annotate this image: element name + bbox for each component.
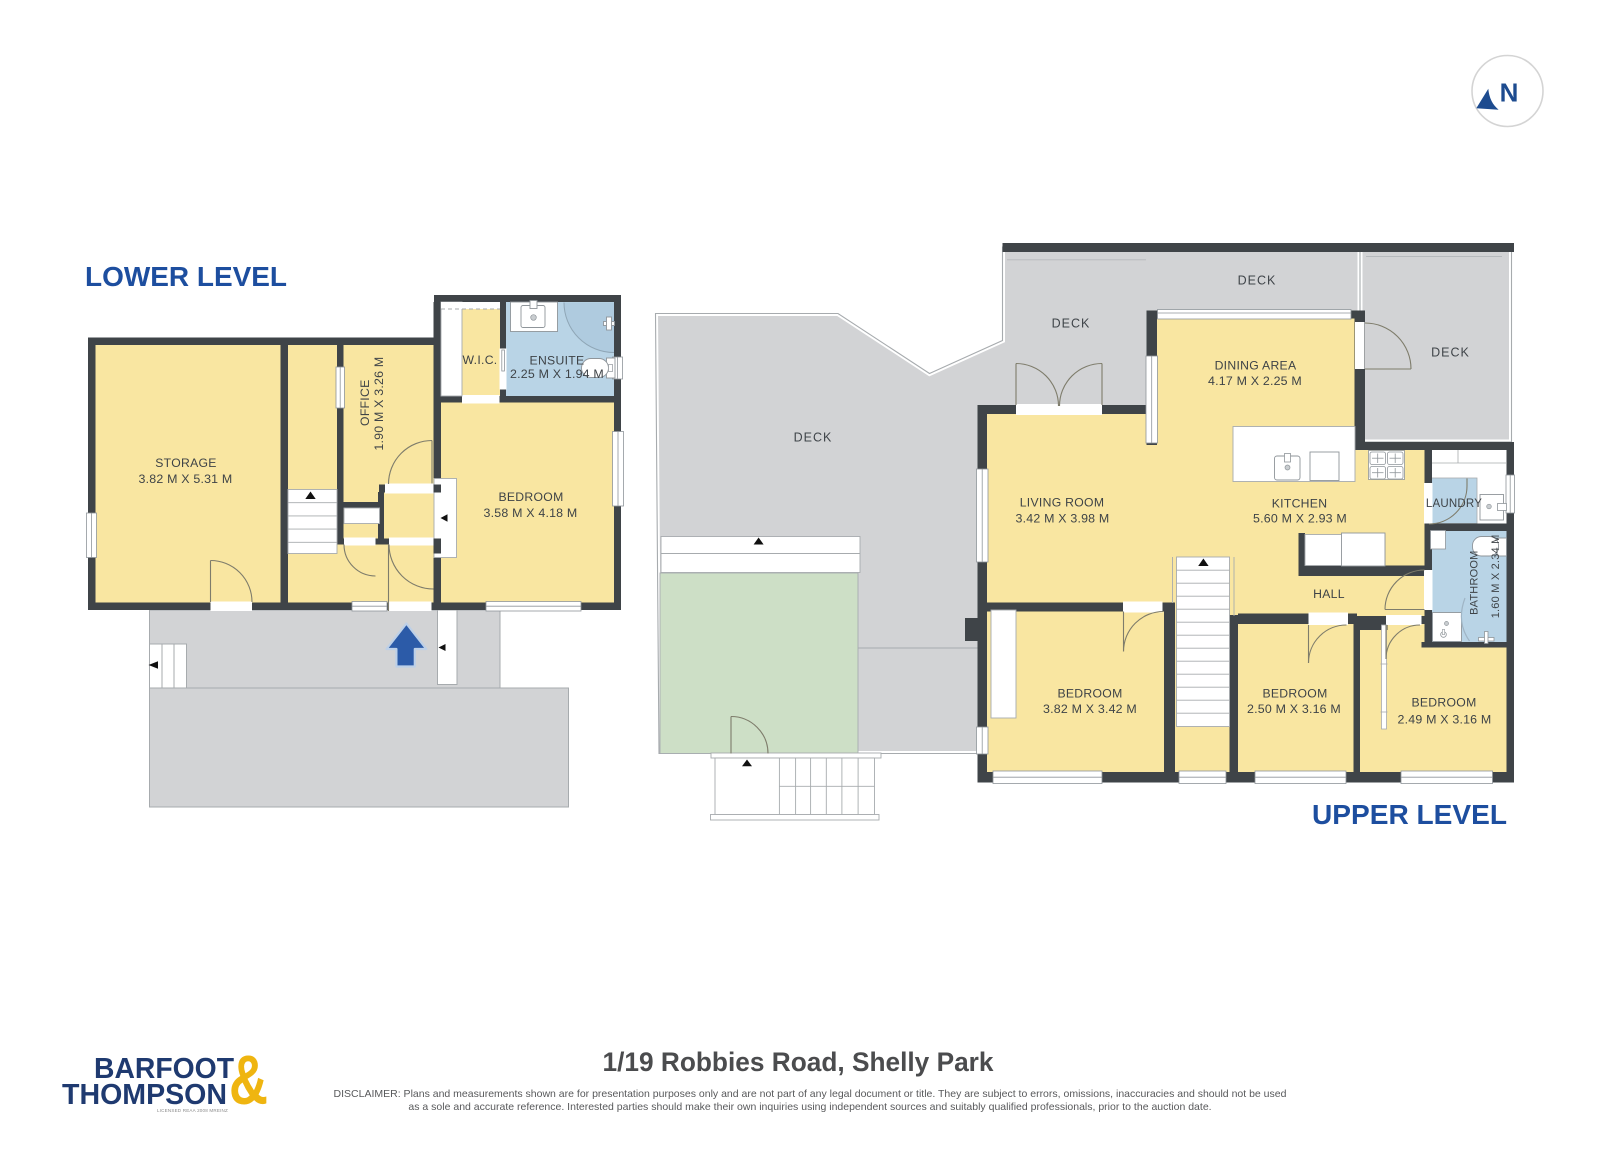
svg-text:&: &	[229, 1041, 268, 1119]
svg-text:DECK: DECK	[1052, 317, 1091, 331]
svg-text:DECK: DECK	[1238, 274, 1277, 288]
svg-text:UPPER LEVEL: UPPER LEVEL	[1312, 799, 1507, 830]
svg-text:3.82 M X 5.31 M: 3.82 M X 5.31 M	[139, 472, 233, 486]
svg-text:LICENSED REAA 2008 MREINZ: LICENSED REAA 2008 MREINZ	[157, 1108, 228, 1114]
svg-text:DISCLAIMER: Plans and measurem: DISCLAIMER: Plans and measurements shown…	[334, 1088, 1287, 1100]
svg-text:1/19 Robbies Road, Shelly Park: 1/19 Robbies Road, Shelly Park	[603, 1047, 995, 1077]
svg-text:2.50 M X 3.16 M: 2.50 M X 3.16 M	[1247, 702, 1341, 716]
svg-text:BEDROOM: BEDROOM	[498, 490, 563, 504]
svg-text:KITCHEN: KITCHEN	[1272, 497, 1328, 511]
svg-text:THOMPSON: THOMPSON	[62, 1079, 227, 1111]
svg-text:3.58 M X 4.18 M: 3.58 M X 4.18 M	[484, 506, 578, 520]
svg-text:BATHROOM: BATHROOM	[1469, 551, 1481, 615]
svg-text:1.60 M X 2.34 M: 1.60 M X 2.34 M	[1490, 535, 1502, 619]
svg-text:OFFICE: OFFICE	[358, 379, 372, 426]
svg-text:5.60 M X 2.93 M: 5.60 M X 2.93 M	[1253, 512, 1347, 526]
svg-text:W.I.C.: W.I.C.	[463, 353, 498, 367]
svg-text:as a sole and accurate referen: as a sole and accurate reference. Intere…	[408, 1101, 1211, 1113]
svg-text:ENSUITE: ENSUITE	[530, 354, 585, 368]
svg-text:STORAGE: STORAGE	[155, 456, 216, 470]
svg-text:N: N	[1500, 78, 1519, 108]
svg-text:BEDROOM: BEDROOM	[1262, 687, 1327, 701]
svg-text:1.90 M X 3.26 M: 1.90 M X 3.26 M	[372, 357, 386, 451]
svg-text:BEDROOM: BEDROOM	[1057, 687, 1122, 701]
svg-text:DINING AREA: DINING AREA	[1215, 359, 1297, 373]
svg-text:DECK: DECK	[794, 431, 833, 445]
svg-text:2.49 M X 3.16 M: 2.49 M X 3.16 M	[1398, 713, 1492, 727]
svg-text:LOWER LEVEL: LOWER LEVEL	[85, 261, 287, 292]
svg-text:4.17 M X 2.25 M: 4.17 M X 2.25 M	[1208, 374, 1302, 388]
svg-text:DECK: DECK	[1431, 346, 1470, 360]
svg-text:BEDROOM: BEDROOM	[1411, 696, 1476, 710]
svg-text:LAUNDRY: LAUNDRY	[1426, 498, 1482, 510]
svg-text:3.42 M X 3.98 M: 3.42 M X 3.98 M	[1016, 512, 1110, 526]
svg-text:3.82 M X 3.42 M: 3.82 M X 3.42 M	[1043, 702, 1137, 716]
svg-text:HALL: HALL	[1313, 587, 1345, 601]
svg-text:LIVING ROOM: LIVING ROOM	[1020, 496, 1105, 510]
svg-text:2.25 M X 1.94 M: 2.25 M X 1.94 M	[510, 367, 604, 381]
